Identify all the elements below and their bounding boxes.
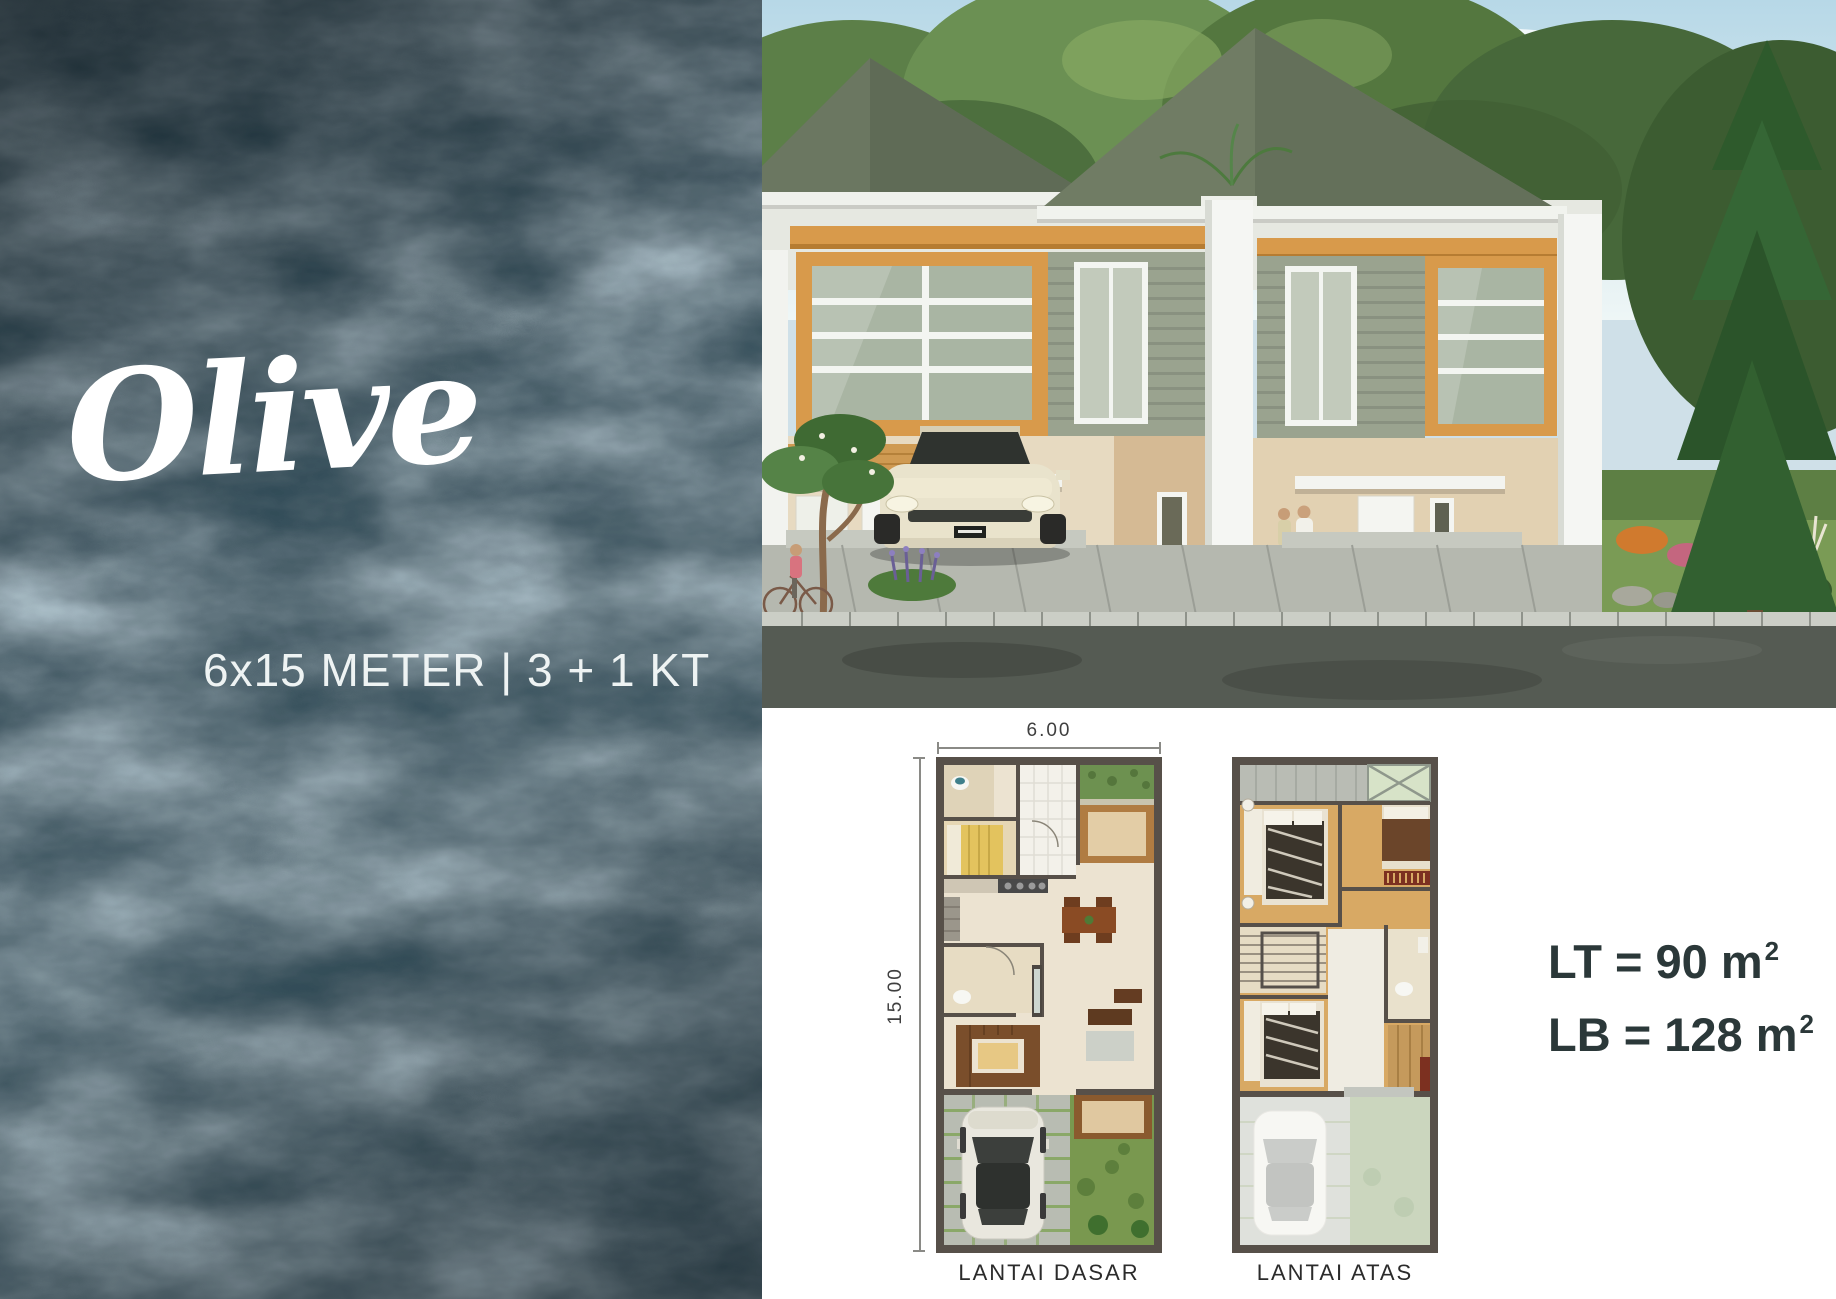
building-area-text: LB = 128 m bbox=[1548, 1008, 1797, 1061]
land-area-spec: LT = 90 m2 bbox=[1548, 920, 1814, 993]
console bbox=[1114, 989, 1142, 1003]
timber-beam bbox=[790, 226, 1205, 246]
dimension-tick bbox=[913, 757, 925, 759]
entry-canopy bbox=[1295, 476, 1505, 489]
dimension-tick bbox=[913, 1250, 925, 1252]
upper-window bbox=[1285, 266, 1357, 426]
front-garden bbox=[1070, 1095, 1154, 1245]
upper-bathroom bbox=[1384, 925, 1430, 1023]
bedroom-three bbox=[1244, 1001, 1324, 1087]
house-exterior-render bbox=[762, 0, 1836, 708]
bedroom-two bbox=[1382, 805, 1430, 885]
hallway bbox=[1328, 929, 1384, 1091]
house-render-illustration bbox=[762, 0, 1836, 708]
plan-caption-upper: LANTAI ATAS bbox=[1232, 1260, 1438, 1286]
parked-car bbox=[957, 1107, 1049, 1239]
flower-bed bbox=[1616, 526, 1668, 554]
plan-upper-floor bbox=[1232, 757, 1438, 1253]
land-area-sup: 2 bbox=[1765, 936, 1779, 966]
ghost-ground-view bbox=[1240, 1097, 1430, 1245]
product-name: Olive bbox=[62, 315, 630, 511]
kitchen-counter bbox=[944, 879, 998, 893]
product-spec-line: 6x15 METER | 3 + 1 KT bbox=[203, 643, 743, 697]
tv-cabinet bbox=[1088, 1009, 1132, 1025]
timber-beam bbox=[1257, 238, 1557, 256]
stairs bbox=[1240, 927, 1326, 993]
floorplan-upper bbox=[1232, 757, 1438, 1253]
upper-window bbox=[1074, 262, 1148, 424]
rock bbox=[1612, 586, 1652, 606]
bathroom bbox=[944, 765, 994, 817]
wardrobe bbox=[1388, 1025, 1430, 1091]
sofa-set bbox=[956, 1025, 1040, 1087]
right-pilaster bbox=[1558, 214, 1602, 590]
dimension-line-horizontal bbox=[938, 747, 1160, 749]
land-area-text: LT = 90 m bbox=[1548, 935, 1763, 988]
rear-garden bbox=[1080, 765, 1154, 799]
rug bbox=[1086, 1031, 1134, 1061]
dimension-tick bbox=[1159, 742, 1161, 754]
balcony bbox=[1240, 765, 1368, 801]
building-area-sup: 2 bbox=[1799, 1009, 1813, 1039]
plan-caption-ground: LANTAI DASAR bbox=[936, 1260, 1162, 1286]
timber-frame-window bbox=[1425, 256, 1557, 436]
marble-panel: Olive 6x15 METER | 3 + 1 KT bbox=[0, 0, 762, 1299]
plan-width-dimension: 6.00 bbox=[938, 720, 1160, 742]
road bbox=[762, 612, 1836, 708]
floorplan-ground bbox=[936, 757, 1162, 1253]
building-area-spec: LB = 128 m2 bbox=[1548, 993, 1814, 1066]
dimension-line-vertical bbox=[919, 758, 921, 1252]
brochure-page: Olive 6x15 METER | 3 + 1 KT bbox=[0, 0, 1836, 1299]
timber-frame-window bbox=[796, 252, 1076, 438]
dimension-tick bbox=[937, 742, 939, 754]
plan-height-dimension: 15.00 bbox=[885, 936, 907, 1056]
plan-ground-floor bbox=[936, 757, 1162, 1253]
pilaster bbox=[762, 250, 788, 590]
master-bedroom bbox=[1242, 799, 1328, 909]
area-specs: LT = 90 m2 LB = 128 m2 bbox=[1548, 920, 1814, 1066]
